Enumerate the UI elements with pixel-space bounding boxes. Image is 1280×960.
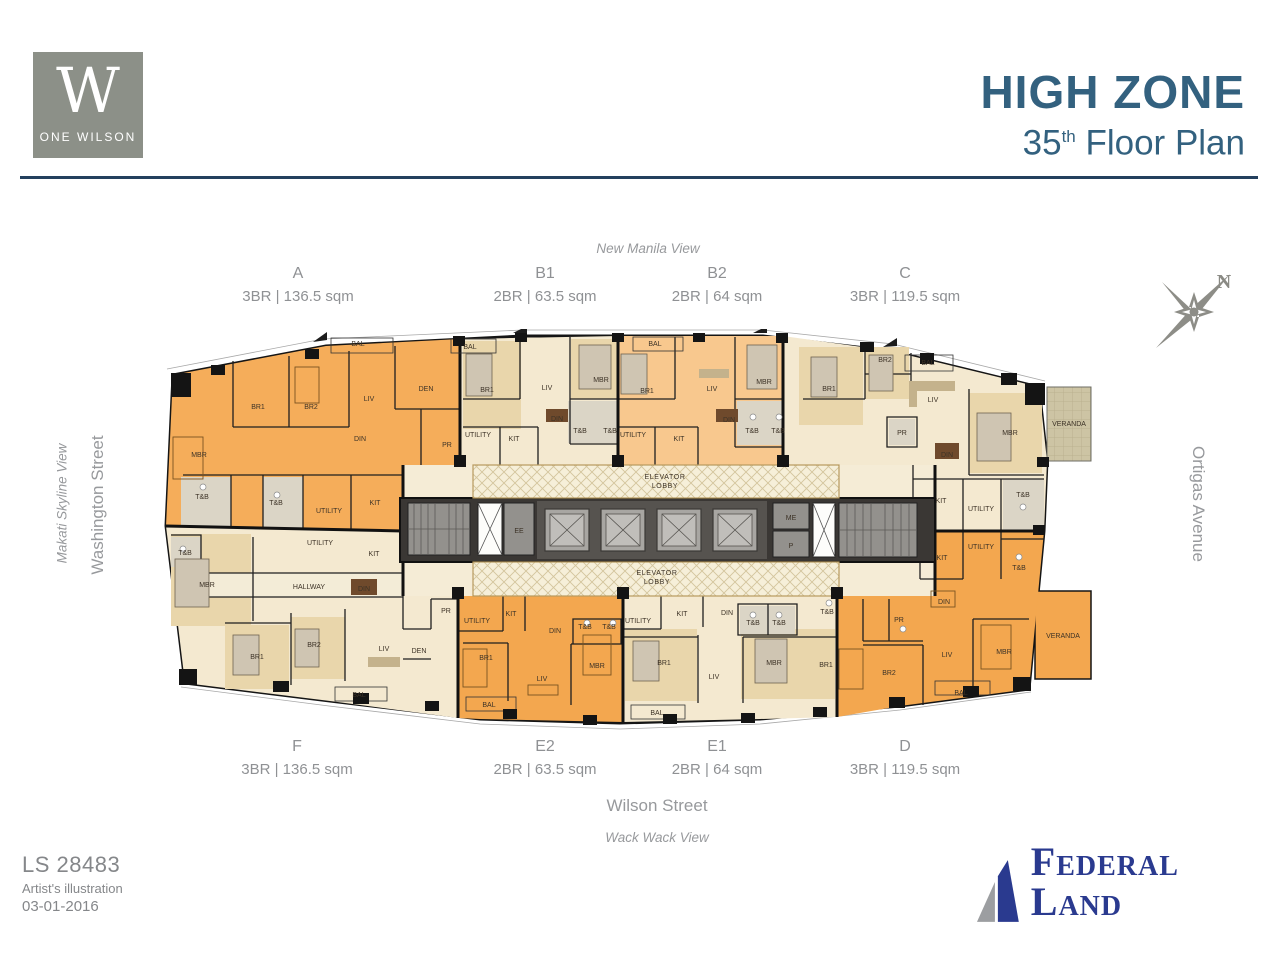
room-label-pr: PR — [441, 608, 451, 615]
unit-id: D — [817, 738, 993, 756]
unit-label-b2: B2 2BR | 64 sqm — [629, 265, 805, 305]
room-label-pr: PR — [894, 617, 904, 624]
room-label-mbr: MBR — [191, 452, 207, 459]
room-label-bal: BAL — [351, 341, 364, 348]
unit-label-f: F 3BR | 136.5 sqm — [209, 738, 385, 778]
room-label-din: DIN — [723, 417, 735, 424]
unit-spec: 3BR | 136.5 sqm — [209, 761, 385, 778]
elevator-lobby-top — [473, 465, 839, 498]
federal-land-logo: Federal Land — [975, 842, 1280, 924]
room-label-tb: T&B — [602, 624, 616, 631]
room-label-bal: BAL — [954, 690, 967, 697]
room-label-liv: LIV — [942, 652, 953, 659]
date-label: 03-01-2016 — [22, 898, 123, 915]
unit-id: E2 — [457, 738, 633, 756]
room-label-tb: T&B — [603, 428, 617, 435]
room-label-liv: LIV — [537, 676, 548, 683]
room-label-bal: BAL — [463, 344, 476, 351]
room-label-bal: BAL — [352, 692, 365, 699]
room-label-me: ME — [786, 515, 797, 522]
artist-illustration-note: Artist's illustration — [22, 881, 123, 896]
room-label-tb: T&B — [195, 494, 209, 501]
room-label-br1: BR1 — [251, 404, 265, 411]
room-label-kit: KIT — [936, 498, 948, 505]
room-label-kit: KIT — [677, 611, 689, 618]
stairs-left — [408, 503, 470, 555]
room-label-br2: BR2 — [882, 670, 896, 677]
unit-label-d: D 3BR | 119.5 sqm — [817, 738, 993, 778]
room-label-utility: UTILITY — [464, 618, 490, 625]
room-label-bal: BAL — [650, 710, 663, 717]
room-label-tb: T&B — [578, 624, 592, 631]
room-label-br1: BR1 — [657, 660, 671, 667]
room-label-bal: BAL — [482, 702, 495, 709]
compass-north-label: N — [1217, 271, 1232, 293]
elevator-bank — [537, 501, 767, 559]
room-label-br2: BR2 — [307, 642, 321, 649]
ee-room — [478, 503, 534, 555]
room-label-tb: T&B — [269, 500, 283, 507]
room-label-pr: PR — [442, 442, 452, 449]
federal-land-spire-icon — [975, 860, 1023, 924]
stairs-right — [839, 503, 917, 557]
view-label-wack-wack: Wack Wack View — [567, 830, 747, 845]
room-label-utility: UTILITY — [968, 544, 994, 551]
room-label-mbr: MBR — [589, 663, 605, 670]
room-label-bal: BAL — [921, 360, 934, 367]
room-label-liv: LIV — [542, 385, 553, 392]
room-label-mbr: MBR — [756, 379, 772, 386]
logo-name: ONE WILSON — [33, 130, 143, 144]
room-label-br1: BR1 — [250, 654, 264, 661]
room-label-utility: UTILITY — [307, 540, 333, 547]
room-label-din: DIN — [721, 610, 733, 617]
room-label-din: DIN — [938, 599, 950, 606]
unit-id: E1 — [629, 738, 805, 756]
floor-plan: BALDENBR1BR2LIVDINMBRPRT&BT&BUTILITYKITB… — [163, 329, 1095, 733]
room-label-tb: T&B — [746, 620, 760, 627]
title-block: HIGH ZONE 35th Floor Plan — [980, 68, 1245, 165]
room-label-din: DIN — [549, 628, 561, 635]
room-label-tb: T&B — [178, 550, 192, 557]
one-wilson-logo: W ONE WILSON — [33, 52, 143, 158]
room-label-tb: T&B — [573, 428, 587, 435]
room-label-liv: LIV — [379, 646, 390, 653]
room-label-lobby: LOBBY — [652, 483, 678, 490]
footer-reference-block: LS 28483 Artist's illustration 03-01-201… — [22, 852, 123, 915]
street-label-wilson: Wilson Street — [567, 796, 747, 816]
unit-label-e2: E2 2BR | 63.5 sqm — [457, 738, 633, 778]
header-divider — [20, 176, 1258, 179]
street-label-ortigas: Ortigas Avenue — [1188, 354, 1208, 654]
floor-plan-text: Floor Plan — [1076, 124, 1245, 163]
room-label-mbr: MBR — [1002, 430, 1018, 437]
room-label-den: DEN — [412, 648, 427, 655]
unit-spec: 2BR | 64 sqm — [629, 761, 805, 778]
unit-label-a: A 3BR | 136.5 sqm — [210, 265, 386, 305]
room-label-den: DEN — [419, 386, 434, 393]
room-label-br1: BR1 — [640, 388, 654, 395]
floor-ordinal: th — [1062, 127, 1076, 146]
unit-spec: 2BR | 64 sqm — [629, 288, 805, 305]
room-label-mbr: MBR — [996, 649, 1012, 656]
page-title: HIGH ZONE — [980, 68, 1245, 116]
room-label-mbr: MBR — [199, 582, 215, 589]
room-label-tb: T&B — [820, 609, 834, 616]
room-label-din: DIN — [358, 586, 370, 593]
room-label-ee: EE — [514, 528, 524, 535]
room-label-kit: KIT — [937, 555, 949, 562]
room-label-liv: LIV — [707, 386, 718, 393]
room-label-kit: KIT — [369, 551, 381, 558]
logo-w-monogram: W — [33, 54, 143, 128]
room-label-liv: LIV — [709, 674, 720, 681]
room-label-kit: KIT — [506, 611, 518, 618]
view-label-new-manila: New Manila View — [558, 241, 738, 256]
room-label-din: DIN — [551, 416, 563, 423]
unit-label-e1: E1 2BR | 64 sqm — [629, 738, 805, 778]
unit-spec: 2BR | 63.5 sqm — [457, 288, 633, 305]
street-label-washington: Washington Street — [88, 355, 108, 655]
room-label-veranda: VERANDA — [1052, 421, 1086, 428]
room-label-br2: BR2 — [304, 404, 318, 411]
unit-id: B2 — [629, 265, 805, 283]
unit-spec: 3BR | 119.5 sqm — [817, 288, 993, 305]
room-label-din: DIN — [941, 452, 953, 459]
unit-id: A — [210, 265, 386, 283]
room-label-hallway: HALLWAY — [293, 584, 325, 591]
room-label-utility: UTILITY — [625, 618, 651, 625]
room-label-kit: KIT — [370, 500, 382, 507]
room-label-tb: T&B — [745, 428, 759, 435]
room-label-mbr: MBR — [593, 377, 609, 384]
unit-label-b1: B1 2BR | 63.5 sqm — [457, 265, 633, 305]
room-label-elevator: ELEVATOR — [637, 570, 678, 577]
page-subtitle: 35th Floor Plan — [980, 116, 1245, 165]
room-label-mbr: MBR — [766, 660, 782, 667]
room-label-p: P — [789, 543, 794, 550]
room-label-din: DIN — [354, 436, 366, 443]
unit-spec: 3BR | 119.5 sqm — [817, 761, 993, 778]
room-label-kit: KIT — [509, 436, 521, 443]
room-label-veranda: VERANDA — [1046, 633, 1080, 640]
room-label-utility: UTILITY — [465, 432, 491, 439]
room-label-tb: T&B — [1016, 492, 1030, 499]
reference-number: LS 28483 — [22, 852, 123, 878]
unit-spec: 2BR | 63.5 sqm — [457, 761, 633, 778]
unit-spec: 3BR | 136.5 sqm — [210, 288, 386, 305]
compass-rose-icon: N — [1146, 264, 1242, 360]
room-label-liv: LIV — [364, 396, 375, 403]
room-label-pr: PR — [897, 430, 907, 437]
room-label-tb: T&B — [1012, 565, 1026, 572]
unit-label-c: C 3BR | 119.5 sqm — [817, 265, 993, 305]
room-label-tb: T&B — [772, 620, 786, 627]
room-label-br1: BR1 — [479, 655, 493, 662]
federal-land-wordmark: Federal Land — [1031, 842, 1280, 922]
room-label-bal: BAL — [648, 341, 661, 348]
unit-id: F — [209, 738, 385, 756]
room-label-br1: BR1 — [822, 386, 836, 393]
floor-number: 35 — [1023, 124, 1062, 163]
room-label-kit: KIT — [674, 436, 686, 443]
room-label-liv: LIV — [928, 397, 939, 404]
room-label-br1: BR1 — [480, 387, 494, 394]
room-label-br2: BR2 — [878, 357, 892, 364]
brochure-page: W ONE WILSON HIGH ZONE 35th Floor Plan N… — [0, 0, 1280, 960]
room-label-utility: UTILITY — [968, 506, 994, 513]
room-label-lobby: LOBBY — [644, 579, 670, 586]
room-label-br1: BR1 — [819, 662, 833, 669]
view-label-makati-skyline: Makati Skyline View — [55, 354, 70, 654]
room-label-utility: UTILITY — [316, 508, 342, 515]
unit-id: C — [817, 265, 993, 283]
room-label-tb: T&B — [771, 428, 785, 435]
room-label-elevator: ELEVATOR — [645, 474, 686, 481]
room-label-utility: UTILITY — [620, 432, 646, 439]
unit-id: B1 — [457, 265, 633, 283]
